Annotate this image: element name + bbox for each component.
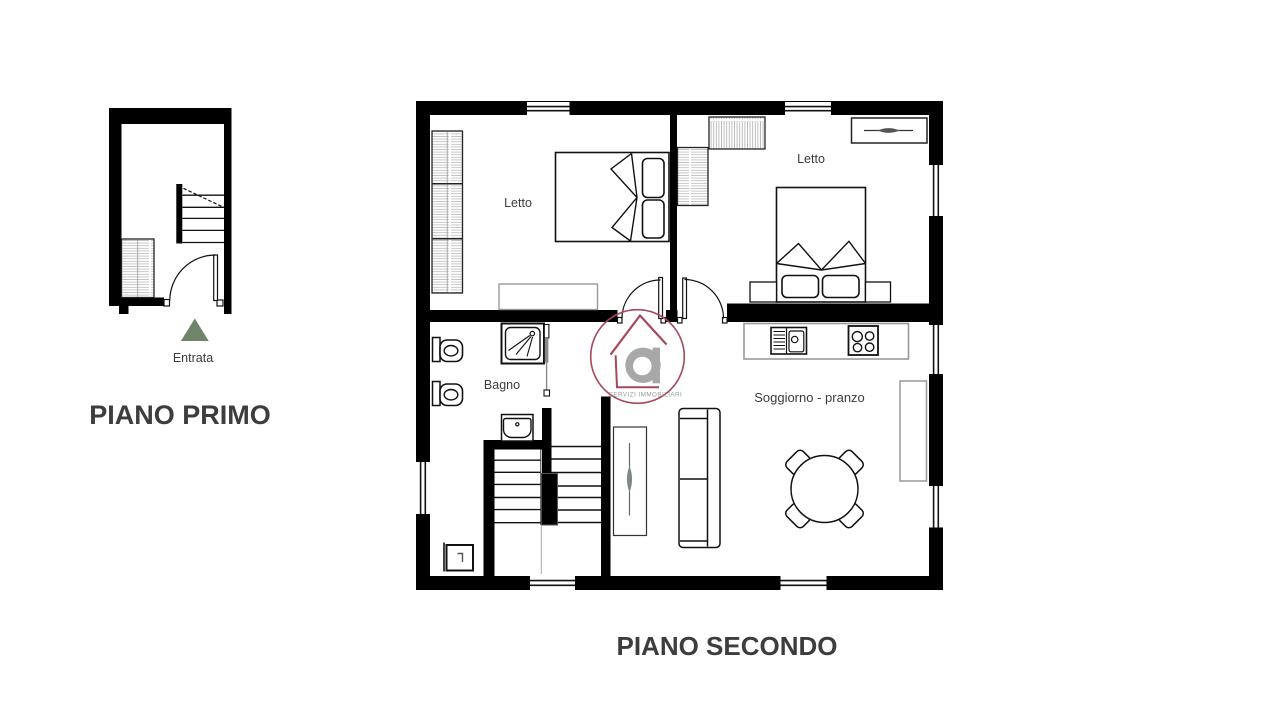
svg-text:Letto: Letto	[797, 152, 825, 166]
svg-text:Letto: Letto	[504, 196, 532, 210]
svg-text:Entrata: Entrata	[173, 351, 213, 365]
svg-text:PIANO PRIMO: PIANO PRIMO	[89, 400, 271, 430]
svg-text:SERVIZI IMMOBILIARI: SERVIZI IMMOBILIARI	[609, 392, 683, 399]
svg-text:PIANO SECONDO: PIANO SECONDO	[616, 631, 837, 661]
svg-text:Bagno: Bagno	[484, 378, 520, 392]
svg-text:Soggiorno - pranzo: Soggiorno - pranzo	[754, 390, 865, 405]
